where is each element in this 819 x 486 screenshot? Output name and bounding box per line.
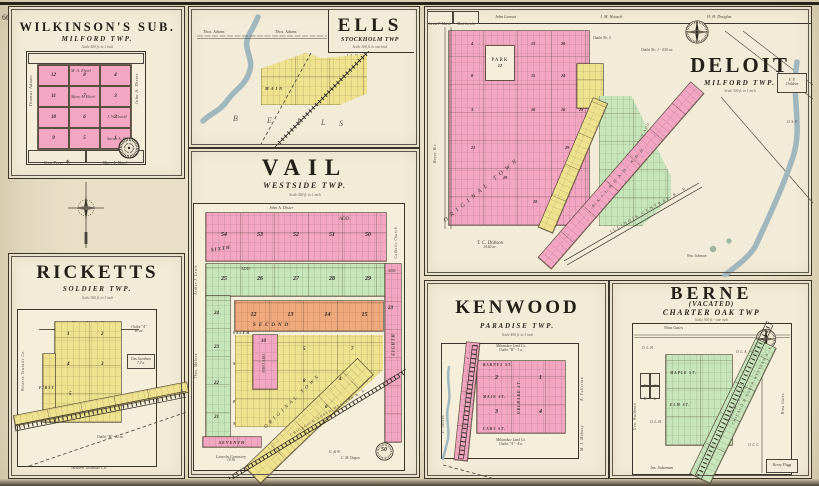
top-rule [0, 2, 819, 5]
owner-label: M. A. Ehorl [71, 69, 91, 73]
church-icon: ✝ [65, 160, 70, 166]
block-number: 5 [83, 136, 86, 141]
outlot-label: O. L. C. [748, 444, 759, 448]
road-label: Boyer Riv. [434, 143, 438, 163]
lettered-parcel: K [640, 386, 650, 399]
outlot-parcel: Milwaukee Land Co. Outlot "A" - 4 a. [465, 439, 557, 447]
lettered-parcel: F [640, 373, 650, 386]
street-label-cary: CARY ST. [483, 427, 506, 431]
block-number: 6 [83, 115, 86, 120]
block-number: 3 [495, 409, 498, 415]
owner-label: Nina Gates [782, 393, 786, 414]
owner-label: Thomas Adams [29, 75, 33, 107]
owner-label: J. W. Gould [107, 115, 127, 119]
owner-label: Western Townsite Co. [71, 465, 107, 470]
wilkinsons-subtitle: MILFORD TWP. [9, 35, 186, 43]
acreage-label: 19.36 [201, 459, 261, 463]
owner-parcel: Henry Flagg [766, 459, 798, 473]
land-letter: S [339, 120, 343, 128]
owner-label: F. Jacobs [442, 415, 446, 433]
ricketts-panel: RICKETTS SOLDIER TWP. Scale 300 ft. to 1… [8, 253, 185, 479]
lettered-parcel: G [650, 373, 660, 386]
railroad-lines [425, 7, 813, 277]
outlot-label: Outlot "B" - 22 ac. [97, 436, 124, 440]
street-label-orchard: ORCHARD ST. [517, 377, 521, 417]
bottom-edge [0, 479, 819, 486]
owner-label: Mary A. Ehorl [103, 160, 127, 165]
block-number: 9 [52, 136, 55, 141]
block-column: 8 7 6 5 [69, 65, 100, 149]
berne-panel: BERNE (VACATED) CHARTER OAK TWP Scale 30… [609, 280, 812, 479]
outlot-label: O. L. A. [736, 351, 747, 355]
kenwood-panel: KENWOOD PARADISE TWP. Scale 400 ft. to 1… [424, 280, 609, 479]
owner-label: Wm. Johnson [687, 255, 706, 259]
owner-label: Mary A. Ehorl [71, 95, 95, 99]
owner-strip: Albert Kral [28, 53, 144, 64]
land-letter: E [267, 117, 272, 125]
street-label-first: FIRST [39, 386, 54, 390]
block-number: 10 [51, 115, 56, 120]
outlot-label: O. L. H. [642, 347, 654, 351]
wilkinsons-panel: WILKINSON'S SUB. MILFORD TWP. Scale 400 … [8, 6, 185, 179]
owner-label-bottom: Western Townsite Co. [39, 456, 139, 474]
acreage-label: 34.60 ac. [445, 246, 535, 250]
ells-panel: ELLS STOCKHOLM TWP Scale 300 ft. to one … [188, 6, 420, 148]
block-number: 8 [83, 73, 86, 78]
block-number: 12 [51, 73, 56, 78]
owner-parcel: T. C. Dobson 34.60 ac. [445, 241, 535, 250]
cemetery-parcel: Lincoln Cemetery 19.36 [201, 455, 261, 463]
street-label-elm: ELM ST. [670, 403, 690, 407]
outlot-label: O. L. H. [650, 421, 662, 425]
outlot-label: Outlot No. 5 [593, 37, 611, 41]
parcel-letter: L [654, 397, 656, 401]
block-number: 1 [539, 375, 542, 381]
owner-label: Children [778, 83, 806, 87]
owner-label: M. J. Mahony [581, 425, 585, 451]
owner-label: E. Fullerton [581, 377, 585, 401]
street-label-barnes: BARNES ST. [483, 363, 513, 367]
owner-label: John A. Dister [135, 73, 139, 104]
block-number: 2 [495, 375, 498, 381]
compass-rose-icon [58, 180, 114, 250]
deloit-panel: Lewis F. Marsh Matt Jacobs John Lanout J… [424, 6, 812, 276]
church-parcel: Cone Prey ✝ [28, 150, 86, 163]
block-column: 12 11 10 9 [38, 65, 69, 149]
owner-parcel: E. F. Children [777, 73, 807, 93]
block-number: 3 [114, 94, 117, 99]
owner-label: Jas. Saltzman [650, 466, 673, 470]
street-label-maple: MAPLE ST. [670, 371, 697, 375]
atlas-page: 66 67 WILKINSON'S SUB. MILFORD TWP. Scal… [0, 0, 819, 486]
seal-stamp-icon [118, 137, 140, 159]
street-label-main: MAIN ST. [483, 395, 506, 399]
outlot-label: Outlot "A" - 4 a. [465, 443, 557, 447]
railroad-lines [189, 7, 421, 149]
block-number: 11 [51, 94, 56, 99]
railroad-lines [9, 254, 186, 480]
parcel-letter: K [644, 397, 646, 401]
land-letter: B [233, 115, 238, 123]
owner-label: Western Townsite Co. [22, 350, 26, 391]
owner-label: O. S. F. [787, 121, 798, 125]
surveyor-label: C. M. Dugan [341, 457, 360, 461]
outlot-label: Outlot No. 1 - 4.50 ac. [641, 49, 673, 53]
land-letter: L [321, 119, 325, 127]
block-number: 4 [539, 409, 542, 415]
surveyor-label: G. & W. [329, 451, 341, 455]
lettered-parcel: L [650, 386, 660, 399]
owner-label: Cone Prey [44, 160, 62, 165]
block-number: 4 [114, 73, 117, 78]
owner-label: Henry Flagg [773, 464, 791, 468]
wilkinsons-title: WILKINSON'S SUB. [9, 20, 186, 35]
vail-panel: VAIL WESTSIDE TWP. Scale 400 ft. to 1 in… [188, 148, 420, 478]
land-letter: L [297, 118, 301, 126]
wilkinsons-scale: Scale 400 ft. to 1 inch [9, 45, 186, 49]
owner-label: Geo. Waldman [634, 403, 638, 430]
stamp-number: 50 [381, 447, 387, 453]
